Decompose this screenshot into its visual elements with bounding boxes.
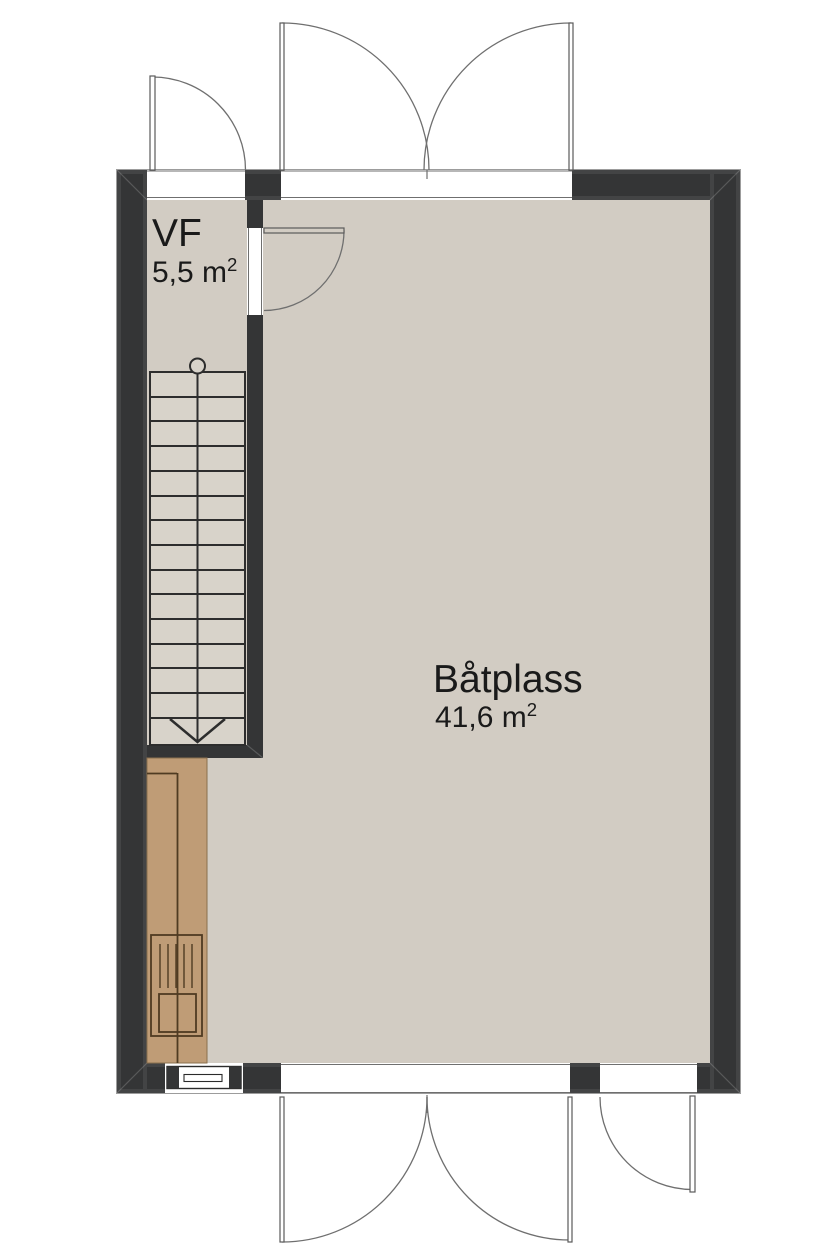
floor-plan: VF 5,5 m2 Båtplass 41,6 m2 (0, 0, 840, 1255)
door-double-bottom-icon (280, 1065, 572, 1243)
room-name-batplass: Båtplass (433, 660, 583, 699)
door-single-bottom-icon (600, 1065, 697, 1193)
room-name-vf: VF (152, 214, 202, 253)
room-area-batplass: 41,6 m2 (435, 701, 537, 733)
plan-linework (0, 0, 840, 1255)
room-area-vf: 5,5 m2 (152, 256, 237, 288)
door-vf-interior-icon (249, 228, 345, 315)
kitchen-counter-icon (147, 758, 207, 1063)
stair-start-circle (190, 359, 205, 374)
door-double-top-icon (280, 23, 573, 198)
window-icon (167, 1067, 241, 1089)
staircase-icon (150, 359, 245, 746)
door-vf-exterior-icon (147, 76, 246, 198)
